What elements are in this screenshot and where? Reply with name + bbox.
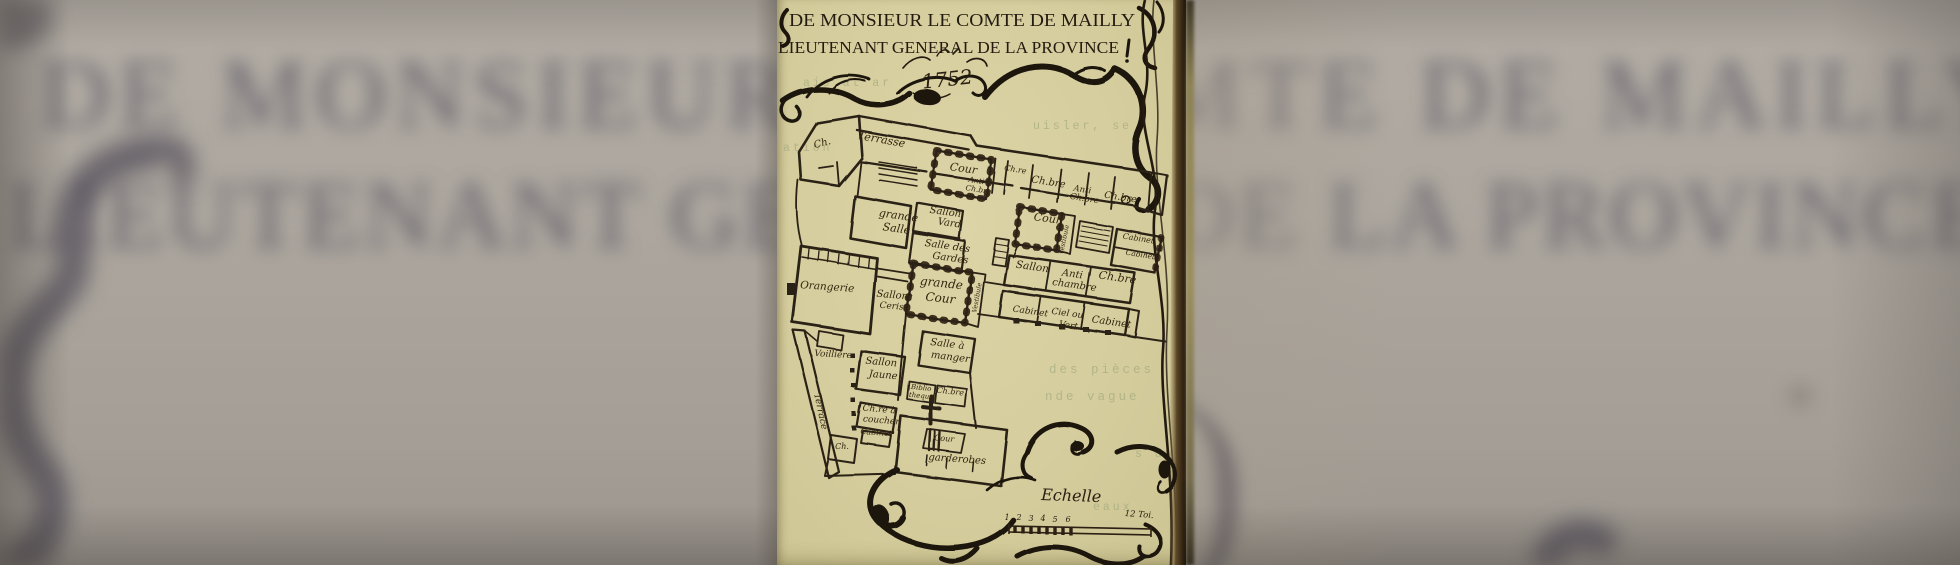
bleed-fragment: nde vague [1045, 390, 1140, 404]
scale-number: 4 [1039, 514, 1045, 523]
room-label: Vert [1058, 320, 1079, 333]
photographed-book-page: DE MONSIEUR LE COMTE DE MAILLY LIEUTENAN… [0, 0, 1960, 565]
chateau-floor-plan: ais at ar uisler, se ation des pièces nd… [777, 0, 1186, 565]
room-label: Orangerie [800, 279, 855, 295]
room-label: chambre [1052, 277, 1098, 294]
room-label: Ch. [835, 442, 849, 451]
room-label: Cour [949, 160, 979, 177]
plan-title-line2: LIEUTENANT GENERAL DE LA PROVINCE [778, 38, 1119, 57]
room-label: coucher [862, 414, 900, 427]
room-label: Ch.bre [1069, 192, 1099, 206]
scale-end-label: 12 Toi. [1124, 509, 1154, 521]
room-label: Cabinet [1091, 314, 1133, 331]
bottom-cartouche-flourish [869, 424, 1176, 563]
scale-number: 3 [1028, 514, 1033, 523]
room-label: manger [930, 350, 971, 366]
room-label: garderobes [928, 452, 986, 467]
room-label: Cabinet [860, 427, 893, 438]
page-dark-edge [1169, 0, 1186, 565]
scale-label: Echelle [1040, 485, 1102, 506]
room-label: Ciel ou [1051, 307, 1084, 321]
background-speck [1793, 389, 1807, 403]
room-label: Cour [925, 289, 957, 306]
chateau-plan-page: ais at ar uisler, se ation des pièces nd… [777, 0, 1186, 565]
page-edge-shadow [755, 0, 777, 565]
bleed-fragment: uisler, se [1033, 120, 1132, 133]
room-label: Ch.bre [1098, 268, 1138, 286]
scale-number: 2 [1015, 513, 1021, 522]
room-label: Vard [937, 216, 962, 230]
scale-number: 1 [1004, 513, 1009, 522]
scale-number: 5 [1052, 515, 1057, 524]
scale-number: 6 [1065, 515, 1070, 524]
scale-bar [1009, 524, 1151, 537]
room-label: Sallon [865, 356, 898, 370]
room-label: Terrasse [857, 129, 907, 150]
room-label: Cabinet [1012, 305, 1049, 320]
plan-title-line1: DE MONSIEUR LE COMTE DE MAILLY [789, 10, 1135, 30]
background-corner-blob [0, 0, 52, 50]
page-edge-sliver [1186, 0, 1194, 565]
room-label: Cour [1033, 210, 1063, 227]
room-label: Voillière [814, 348, 852, 361]
room-label: Cour [934, 433, 956, 444]
room-label: Cabinet [1125, 248, 1157, 262]
scale-group: Echelle 1 2 3 4 5 6 12 Toi. [1004, 485, 1154, 537]
room-label: Jaune [866, 369, 898, 383]
plan-right-border [1143, 0, 1186, 565]
bleed-fragment: des pièces [1049, 363, 1154, 377]
room-label: Ch.bre [936, 386, 965, 398]
room-label: Cabinet [1122, 232, 1155, 246]
room-label: Cerise [879, 301, 909, 314]
room-label: Terrace [811, 392, 830, 431]
room-label: Salle [882, 220, 912, 237]
